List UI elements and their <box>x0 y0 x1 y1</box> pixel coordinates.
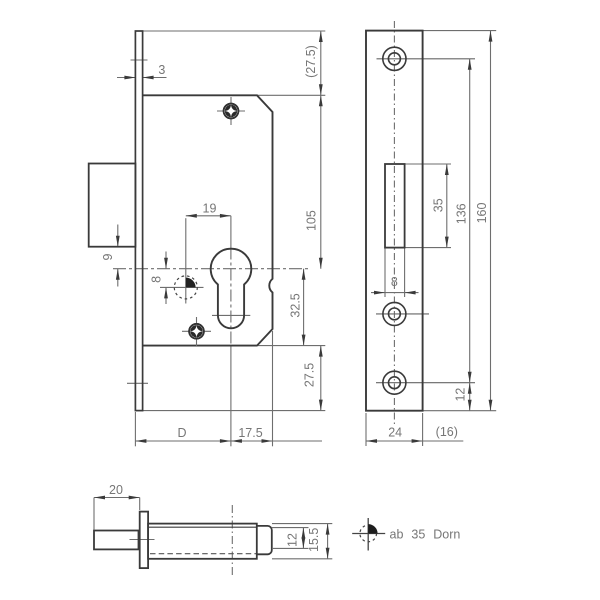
svg-text:105: 105 <box>305 210 319 231</box>
svg-text:9: 9 <box>101 253 115 260</box>
svg-text:3: 3 <box>158 63 165 77</box>
svg-text:8: 8 <box>149 276 163 283</box>
svg-text:15.5: 15.5 <box>307 528 321 552</box>
svg-text:8: 8 <box>391 275 398 289</box>
svg-text:35: 35 <box>431 198 445 212</box>
svg-text:17.5: 17.5 <box>238 426 262 440</box>
svg-text:136: 136 <box>454 203 468 224</box>
svg-text:12: 12 <box>454 388 468 402</box>
svg-text:(16): (16) <box>436 425 458 439</box>
svg-text:(27.5): (27.5) <box>304 45 318 78</box>
svg-text:ab 35 Dorn: ab 35 Dorn <box>390 528 461 542</box>
svg-text:32.5: 32.5 <box>288 293 302 317</box>
svg-text:19: 19 <box>203 202 217 216</box>
svg-text:27.5: 27.5 <box>303 363 317 387</box>
svg-text:160: 160 <box>475 203 489 224</box>
svg-text:24: 24 <box>388 426 402 440</box>
svg-text:20: 20 <box>109 483 123 497</box>
svg-text:D: D <box>177 426 186 440</box>
svg-text:12: 12 <box>286 533 300 547</box>
